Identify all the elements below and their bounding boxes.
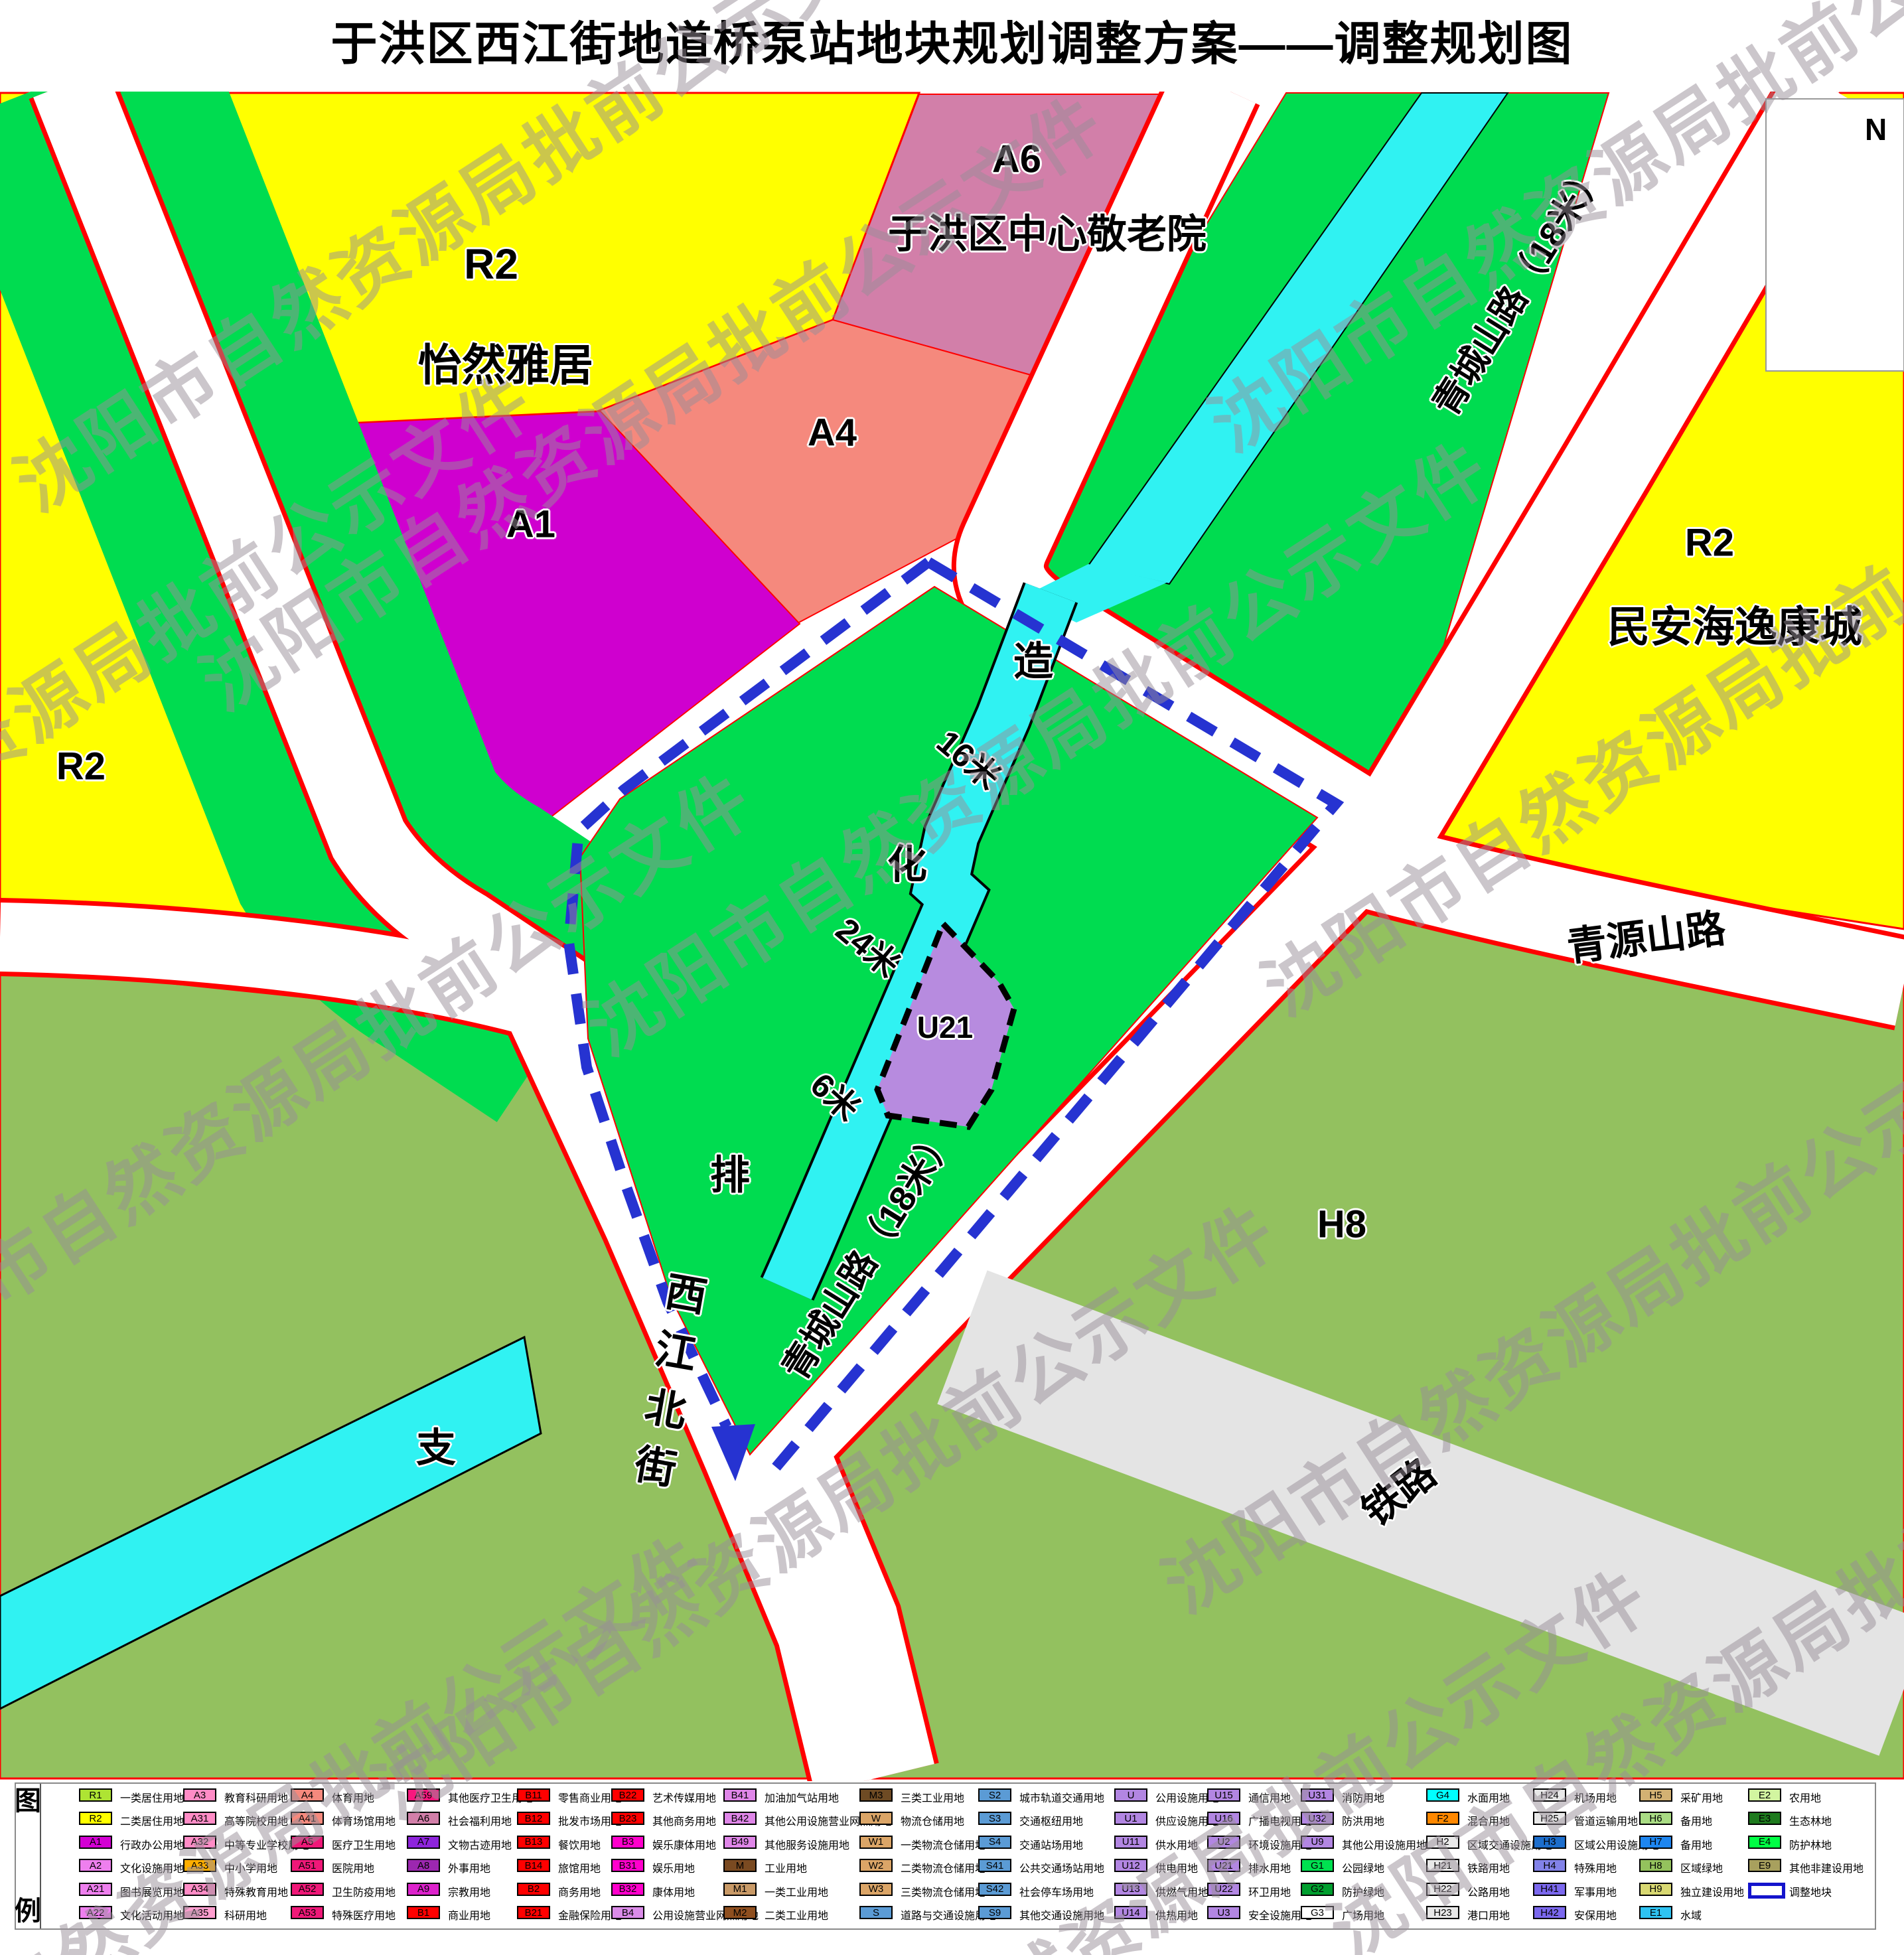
- legend-swatch-u32: U32: [1301, 1812, 1334, 1825]
- legend-swatch-b31: B31: [611, 1859, 644, 1872]
- planning-map-page: 于洪区西江街地道桥泵站地块规划调整方案——调整规划图 N R2怡然雅居A6于洪区…: [0, 0, 1904, 1955]
- legend-label: 康体用地: [652, 1883, 695, 1899]
- legend-swatch-e9: E9: [1748, 1859, 1781, 1872]
- legend-swatch-a35: A35: [183, 1906, 216, 1919]
- legend-swatch-a33: A33: [183, 1859, 216, 1872]
- legend-swatch-f2: F2: [1426, 1812, 1459, 1825]
- legend-label: 特殊医疗用地: [332, 1907, 396, 1922]
- legend-label: 工业用地: [765, 1859, 807, 1875]
- legend-label: 体育场馆用地: [332, 1812, 396, 1828]
- legend-swatch-u9: U9: [1301, 1836, 1334, 1849]
- legend-swatch-a2: A2: [79, 1859, 112, 1872]
- legend-label: 排水用地: [1248, 1859, 1291, 1875]
- legend-swatch-h42: H42: [1533, 1906, 1566, 1919]
- legend-label: 餐饮用地: [558, 1836, 601, 1852]
- legend-swatch-u22: U22: [1207, 1883, 1240, 1896]
- legend-swatch-a31: A31: [183, 1812, 216, 1825]
- legend-swatch-u14: U14: [1114, 1906, 1147, 1919]
- legend-swatch-b2: B2: [517, 1883, 550, 1896]
- legend-swatch-u: U: [1114, 1788, 1147, 1802]
- legend-swatch-s41: S41: [978, 1859, 1011, 1872]
- legend-swatch-b13: B13: [517, 1836, 550, 1849]
- legend-swatch-adjust-plot: [1748, 1883, 1785, 1899]
- legend-swatch-b42: B42: [723, 1812, 757, 1825]
- legend-swatch-g1: G1: [1301, 1859, 1334, 1872]
- legend-swatch-a21: A21: [79, 1883, 112, 1896]
- legend-label: 图书展览用地: [120, 1883, 184, 1899]
- map-label: 怡然雅居: [418, 330, 593, 394]
- legend-swatch-h9: H9: [1639, 1883, 1672, 1896]
- legend-label: 混合用地: [1467, 1812, 1510, 1828]
- legend-label: 安保用地: [1574, 1907, 1617, 1922]
- map-label: 造: [1013, 630, 1053, 688]
- legend-swatch-b4: B4: [611, 1906, 644, 1919]
- legend-label: 体育用地: [332, 1789, 374, 1805]
- legend-label: 独立建设用地: [1680, 1883, 1744, 1899]
- legend-swatch-u21: U21: [1207, 1859, 1240, 1872]
- legend-swatch-e1: E1: [1639, 1906, 1672, 1919]
- legend-label: 区域绿地: [1680, 1859, 1723, 1875]
- legend-label: 其他非建设用地: [1789, 1859, 1864, 1875]
- map-label: A4: [808, 411, 857, 455]
- map-label: A1: [506, 502, 555, 547]
- legend-label: 物流仓储用地: [901, 1812, 964, 1828]
- legend-swatch-h21: H21: [1426, 1859, 1459, 1872]
- legend-swatch-u13: U13: [1114, 1883, 1147, 1896]
- legend-swatch-r2: R2: [79, 1812, 112, 1825]
- legend-swatch-h41: H41: [1533, 1883, 1566, 1896]
- legend-label: 采矿用地: [1680, 1789, 1723, 1805]
- legend-swatch-a9: A9: [407, 1883, 440, 1896]
- legend-label: 娱乐用地: [652, 1859, 695, 1875]
- legend-swatch-b12: B12: [517, 1812, 550, 1825]
- map-label: 于洪区中心敬老院: [888, 202, 1207, 260]
- legend-swatch-h22: H22: [1426, 1883, 1459, 1896]
- legend-swatch-s: S: [859, 1906, 893, 1919]
- legend-label: 公路用地: [1467, 1883, 1510, 1899]
- legend-swatch-m3: M3: [859, 1788, 893, 1802]
- legend-swatch-w: W: [859, 1812, 893, 1825]
- legend-label: 行政办公用地: [120, 1836, 184, 1852]
- legend-label: 农用地: [1789, 1789, 1821, 1805]
- legend-label: 商务用地: [558, 1883, 601, 1899]
- legend-swatch-s9: S9: [978, 1906, 1011, 1919]
- map-label: 化: [887, 833, 927, 891]
- legend-label: 医疗卫生用地: [332, 1836, 396, 1852]
- legend-label: 旅馆用地: [558, 1859, 601, 1875]
- legend-swatch-a53: A53: [291, 1906, 324, 1919]
- legend-label: 二类居住用地: [120, 1812, 184, 1828]
- legend-swatch-h24: H24: [1533, 1788, 1566, 1802]
- map-label: 排: [710, 1143, 750, 1201]
- legend-swatch-b14: B14: [517, 1859, 550, 1872]
- legend-label: 二类物流仓储用地: [901, 1859, 986, 1875]
- legend-label: 艺术传媒用地: [652, 1789, 716, 1805]
- legend-panel-title: 图 例: [16, 1784, 41, 1928]
- legend-swatch-h3: H3: [1533, 1836, 1566, 1849]
- legend-label: 消防用地: [1342, 1789, 1384, 1805]
- legend-swatch-h2: H2: [1426, 1836, 1459, 1849]
- legend-label: 加油加气站用地: [765, 1789, 839, 1805]
- legend-label: 其他服务设施用地: [765, 1836, 849, 1852]
- legend-swatch-w3: W3: [859, 1883, 893, 1896]
- legend-swatch-u2: U2: [1207, 1836, 1240, 1849]
- legend-swatch-u15: U15: [1207, 1788, 1240, 1802]
- legend-swatch-b41: B41: [723, 1788, 757, 1802]
- legend-label: 二类工业用地: [765, 1907, 828, 1922]
- legend-label: 娱乐康体用地: [652, 1836, 716, 1852]
- legend-swatch-a3: A3: [183, 1788, 216, 1802]
- legend-label: 港口用地: [1467, 1907, 1510, 1922]
- legend-swatch-b3: B3: [611, 1836, 644, 1849]
- legend-panel-char-li: 例: [15, 1898, 41, 1924]
- map-label: R2: [1685, 521, 1734, 565]
- legend-swatch-b23: B23: [611, 1812, 644, 1825]
- map-label: 民安海逸康城: [1607, 593, 1862, 654]
- legend-swatch-u31: U31: [1301, 1788, 1334, 1802]
- legend-swatch-s4: S4: [978, 1836, 1011, 1849]
- legend-label: 其他商务用地: [652, 1812, 716, 1828]
- legend-swatch-b11: B11: [517, 1788, 550, 1802]
- legend-swatch-w1: W1: [859, 1836, 893, 1849]
- legend-label: 防洪用地: [1342, 1812, 1384, 1828]
- legend-label: 三类物流仓储用地: [901, 1883, 986, 1899]
- legend-label: 一类工业用地: [765, 1883, 828, 1899]
- legend-label: 其他公用设施用地: [1342, 1836, 1427, 1852]
- legend-swatch-a52: A52: [291, 1883, 324, 1896]
- legend-label: 防护林地: [1789, 1836, 1832, 1852]
- legend-label: 教育科研用地: [224, 1789, 288, 1805]
- planning-map-canvas: [0, 0, 1904, 1955]
- legend-label: 高等院校用地: [224, 1812, 288, 1828]
- legend-swatch-m1: M1: [723, 1883, 757, 1896]
- legend-label: 三类工业用地: [901, 1789, 964, 1805]
- legend-swatch-a22: A22: [79, 1906, 112, 1919]
- legend-label: 生态林地: [1789, 1812, 1832, 1828]
- legend-label: 供燃气用地: [1155, 1883, 1208, 1899]
- legend-label: 其他交通设施用地: [1019, 1907, 1104, 1922]
- legend-swatch-u3: U3: [1207, 1906, 1240, 1919]
- legend-label: 宗教用地: [448, 1883, 490, 1899]
- legend-label: 通信用地: [1248, 1789, 1291, 1805]
- legend-label: 管道运输用地: [1574, 1812, 1638, 1828]
- legend-label: 供水用地: [1155, 1836, 1198, 1852]
- legend-swatch-r1: R1: [79, 1788, 112, 1802]
- legend-label: 中小学用地: [224, 1859, 277, 1875]
- legend-swatch-s2: S2: [978, 1788, 1011, 1802]
- legend-swatch-a5: A5: [291, 1836, 324, 1849]
- legend-swatch-u12: U12: [1114, 1859, 1147, 1872]
- legend-label: 供热用地: [1155, 1907, 1198, 1922]
- legend-swatch-e2: E2: [1748, 1788, 1781, 1802]
- legend-label: 公园绿地: [1342, 1859, 1384, 1875]
- legend-label: 备用地: [1680, 1812, 1712, 1828]
- map-label: R2: [56, 745, 106, 789]
- legend-label: 城市轨道交通用地: [1019, 1789, 1104, 1805]
- legend-swatch-g4: G4: [1426, 1788, 1459, 1802]
- legend-label: 文化活动用地: [120, 1907, 184, 1922]
- legend-swatch-a51: A51: [291, 1859, 324, 1872]
- legend-label: 公共交通场站用地: [1019, 1859, 1104, 1875]
- legend-swatch-u16: U16: [1207, 1812, 1240, 1825]
- map-label: H8: [1317, 1202, 1366, 1247]
- legend-swatch-h23: H23: [1426, 1906, 1459, 1919]
- north-arrow-box: N: [1765, 98, 1904, 372]
- legend-label: 医院用地: [332, 1859, 374, 1875]
- map-label: U21: [917, 1009, 973, 1045]
- legend-label: 铁路用地: [1467, 1859, 1510, 1875]
- legend-label: 特殊用地: [1574, 1859, 1617, 1875]
- legend-label: 水域: [1680, 1907, 1702, 1922]
- legend-swatch-a59: A59: [407, 1788, 440, 1802]
- map-label: 支: [416, 1416, 456, 1474]
- legend-swatch-b32: B32: [611, 1883, 644, 1896]
- legend-swatch-a8: A8: [407, 1859, 440, 1872]
- legend-swatch-b21: B21: [517, 1906, 550, 1919]
- legend-label: 备用地: [1680, 1836, 1712, 1852]
- legend-swatch-b22: B22: [611, 1788, 644, 1802]
- legend-swatch-h6: H6: [1639, 1812, 1672, 1825]
- legend-swatch-h5: H5: [1639, 1788, 1672, 1802]
- legend-swatch-m: M: [723, 1859, 757, 1872]
- legend-swatch-a41: A41: [291, 1812, 324, 1825]
- legend-swatch-m2: M2: [723, 1906, 757, 1919]
- legend-swatch-a4: A4: [291, 1788, 324, 1802]
- legend-label: 水面用地: [1467, 1789, 1510, 1805]
- legend-label: 环卫用地: [1248, 1883, 1291, 1899]
- legend-label: 社会停车场用地: [1019, 1883, 1094, 1899]
- legend-swatch-h7: H7: [1639, 1836, 1672, 1849]
- legend-swatch-e4: E4: [1748, 1836, 1781, 1849]
- legend-panel-char-tu: 图: [15, 1788, 41, 1814]
- legend-swatch-h8: H8: [1639, 1859, 1672, 1872]
- legend-swatch-w2: W2: [859, 1859, 893, 1872]
- legend-label: 一类物流仓储用地: [901, 1836, 986, 1852]
- legend-label: 文物古迹用地: [448, 1836, 512, 1852]
- legend-label: 社会福利用地: [448, 1812, 512, 1828]
- legend-label: 一类居住用地: [120, 1789, 184, 1805]
- legend-label: 调整地块: [1789, 1883, 1832, 1899]
- legend-swatch-a34: A34: [183, 1883, 216, 1896]
- legend-label: 文化设施用地: [120, 1859, 184, 1875]
- legend-label: 外事用地: [448, 1859, 490, 1875]
- legend-swatch-u11: U11: [1114, 1836, 1147, 1849]
- north-label: N: [1865, 111, 1887, 147]
- legend-swatch-g2: G2: [1301, 1883, 1334, 1896]
- legend-swatch-e3: E3: [1748, 1812, 1781, 1825]
- legend-label: 卫生防疫用地: [332, 1883, 396, 1899]
- legend-label: 交通站场用地: [1019, 1836, 1083, 1852]
- legend-label: 科研用地: [224, 1907, 267, 1922]
- legend-label: 机场用地: [1574, 1789, 1617, 1805]
- legend-label: 特殊教育用地: [224, 1883, 288, 1899]
- legend-swatch-s42: S42: [978, 1883, 1011, 1896]
- legend-label: 交通枢纽用地: [1019, 1812, 1083, 1828]
- legend: 图 例 R1一类居住用地R2二类居住用地A1行政办公用地A2文化设施用地A21图…: [15, 1782, 1876, 1930]
- legend-label: 军事用地: [1574, 1883, 1617, 1899]
- legend-label: 广场用地: [1342, 1907, 1384, 1922]
- legend-swatch-a1: A1: [79, 1836, 112, 1849]
- legend-swatch-b49: B49: [723, 1836, 757, 1849]
- legend-label: 供电用地: [1155, 1859, 1198, 1875]
- legend-swatch-a6: A6: [407, 1812, 440, 1825]
- legend-swatch-a32: A32: [183, 1836, 216, 1849]
- legend-label: 商业用地: [448, 1907, 490, 1922]
- legend-swatch-a7: A7: [407, 1836, 440, 1849]
- legend-swatch-s3: S3: [978, 1812, 1011, 1825]
- legend-label: 防护绿地: [1342, 1883, 1384, 1899]
- legend-swatch-h25: H25: [1533, 1812, 1566, 1825]
- page-title: 于洪区西江街地道桥泵站地块规划调整方案——调整规划图: [0, 7, 1904, 74]
- map-label: R2: [464, 240, 518, 289]
- legend-swatch-b1: B1: [407, 1906, 440, 1919]
- legend-swatch-h4: H4: [1533, 1859, 1566, 1872]
- legend-swatch-u1: U1: [1114, 1812, 1147, 1825]
- map-label: A6: [992, 137, 1041, 182]
- legend-swatch-g3: G3: [1301, 1906, 1334, 1919]
